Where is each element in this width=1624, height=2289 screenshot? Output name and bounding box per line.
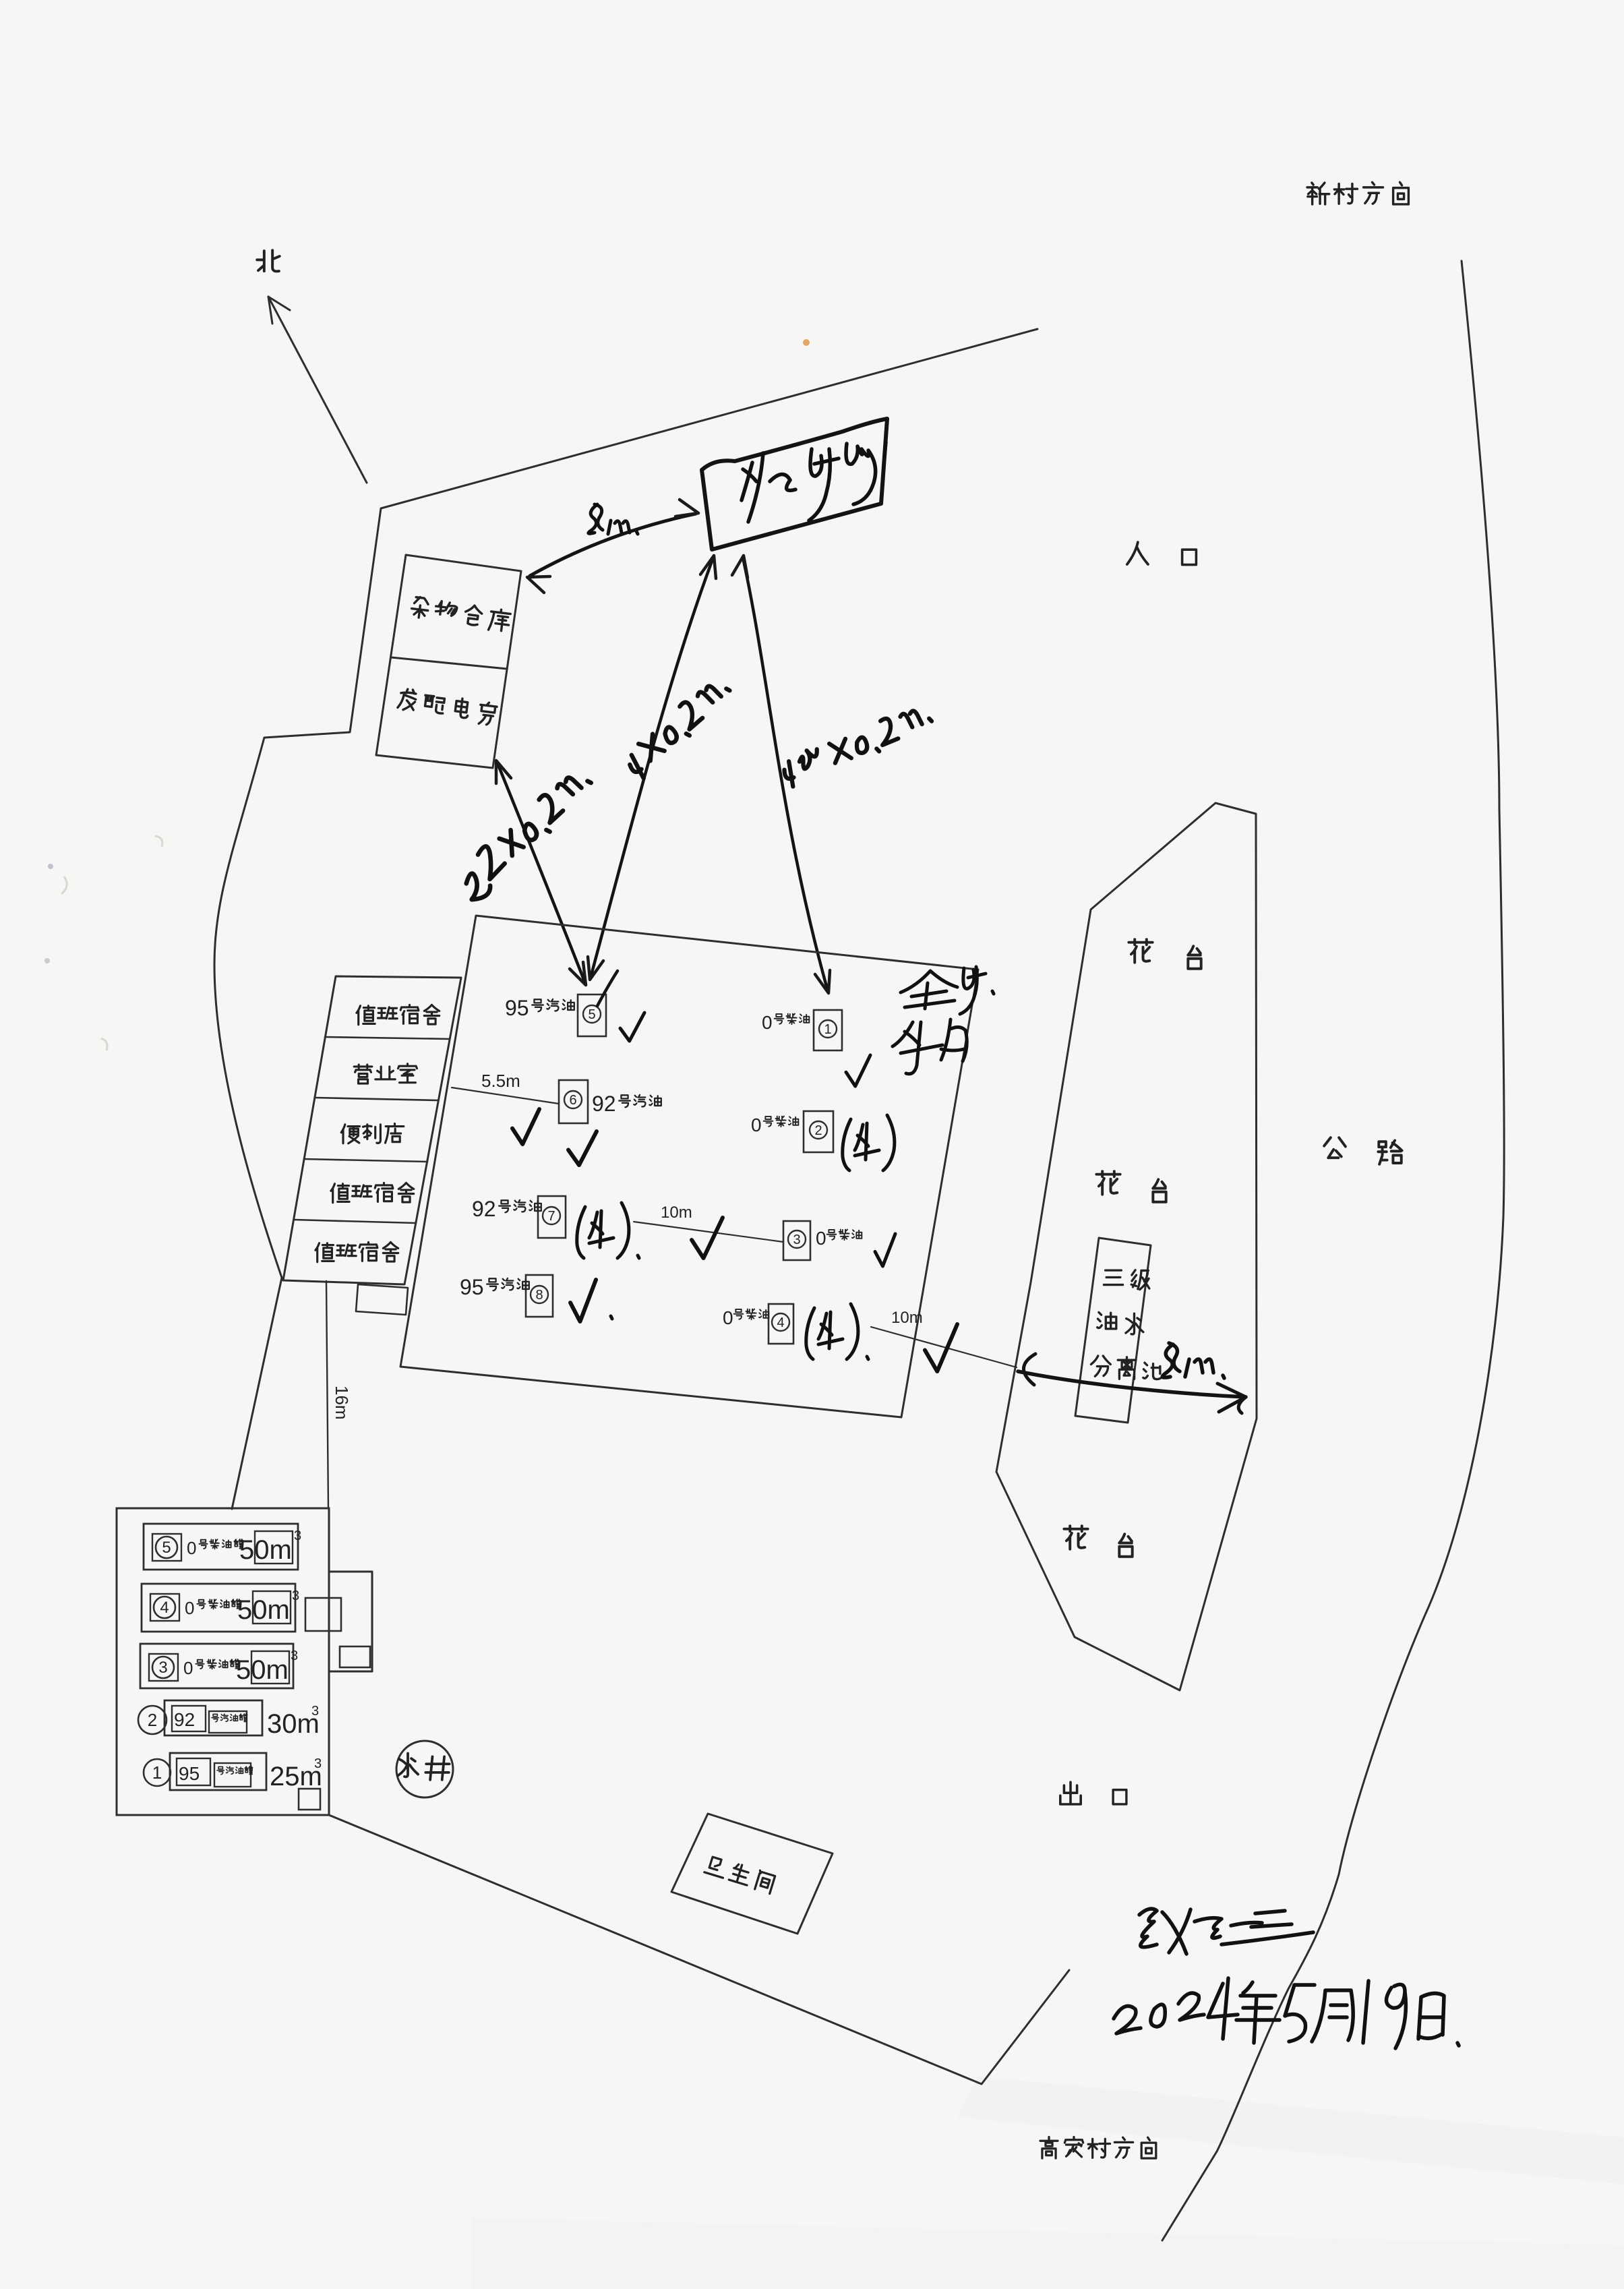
svg-text:3: 3 bbox=[793, 1232, 800, 1247]
svg-text:0: 0 bbox=[816, 1228, 826, 1249]
svg-text:92: 92 bbox=[472, 1197, 496, 1221]
svg-text:95: 95 bbox=[460, 1275, 484, 1299]
svg-text:3: 3 bbox=[311, 1704, 319, 1719]
svg-text:0: 0 bbox=[762, 1012, 773, 1033]
svg-text:0: 0 bbox=[183, 1658, 193, 1678]
svg-text:3: 3 bbox=[291, 1648, 298, 1663]
svg-text:0: 0 bbox=[751, 1114, 762, 1135]
svg-text:16m: 16m bbox=[332, 1386, 352, 1420]
svg-text:50m: 50m bbox=[237, 1595, 290, 1625]
svg-text:3: 3 bbox=[292, 1588, 299, 1603]
svg-text:4: 4 bbox=[777, 1315, 784, 1330]
svg-text:50m: 50m bbox=[239, 1535, 292, 1565]
svg-text:6: 6 bbox=[569, 1093, 576, 1108]
svg-text:3: 3 bbox=[158, 1659, 167, 1677]
svg-text:5: 5 bbox=[588, 1007, 595, 1022]
svg-text:4: 4 bbox=[160, 1599, 169, 1617]
svg-text:10m: 10m bbox=[661, 1203, 692, 1222]
svg-text:1: 1 bbox=[152, 1762, 162, 1783]
svg-text:8: 8 bbox=[535, 1288, 543, 1303]
svg-text:50m: 50m bbox=[236, 1655, 289, 1685]
svg-text:0: 0 bbox=[187, 1538, 196, 1558]
svg-text:92: 92 bbox=[592, 1092, 616, 1116]
svg-text:3: 3 bbox=[294, 1528, 301, 1543]
svg-text:5: 5 bbox=[162, 1539, 171, 1557]
svg-text:0: 0 bbox=[723, 1307, 733, 1328]
svg-text:0: 0 bbox=[185, 1598, 194, 1618]
svg-text:2: 2 bbox=[814, 1123, 822, 1138]
svg-text:95: 95 bbox=[505, 996, 529, 1020]
svg-text:95: 95 bbox=[179, 1763, 200, 1784]
svg-text:2: 2 bbox=[148, 1710, 157, 1730]
svg-text:10m: 10m bbox=[891, 1309, 923, 1327]
svg-text:3: 3 bbox=[314, 1756, 322, 1771]
svg-text:1: 1 bbox=[824, 1022, 831, 1037]
svg-text:92: 92 bbox=[174, 1709, 195, 1730]
svg-text:7: 7 bbox=[547, 1209, 555, 1224]
svg-text:5.5m: 5.5m bbox=[481, 1071, 520, 1091]
